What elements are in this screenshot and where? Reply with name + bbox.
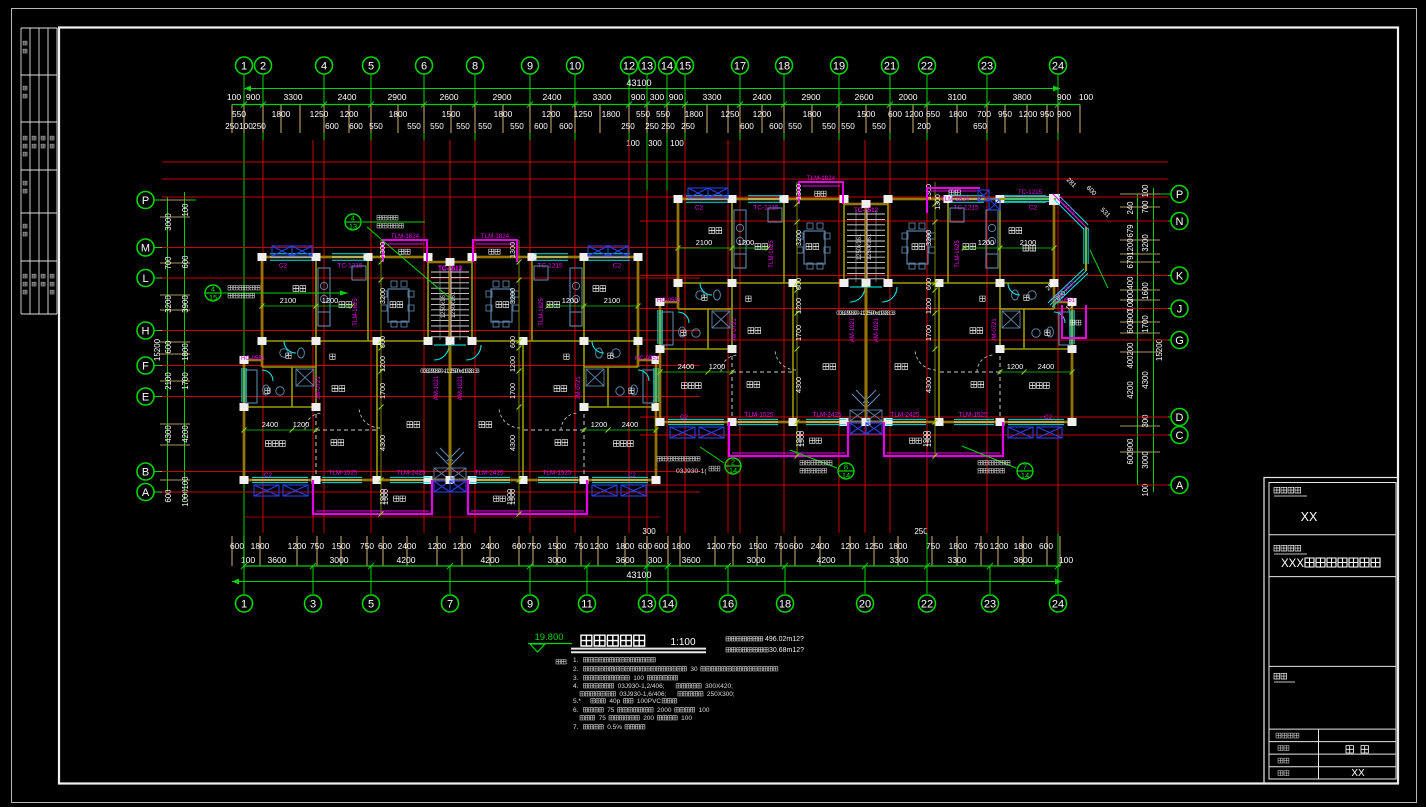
svg-text:C2: C2 — [680, 414, 688, 421]
svg-text:750: 750 — [574, 541, 588, 551]
svg-text:G: G — [1175, 335, 1184, 347]
svg-text:1600: 1600 — [1141, 282, 1150, 300]
svg-text:400: 400 — [1126, 276, 1135, 290]
svg-text:TLM-2425: TLM-2425 — [474, 470, 504, 477]
svg-text:03J930-1,2/406;: 03J930-1,2/406; — [618, 683, 665, 690]
svg-text:14: 14 — [842, 471, 850, 480]
svg-text:1250x161: 1250x161 — [451, 291, 457, 318]
svg-text:1800: 1800 — [272, 109, 291, 119]
svg-text:TLM-1824: TLM-1824 — [941, 196, 970, 203]
svg-text:TLM-2425: TLM-2425 — [396, 470, 426, 477]
svg-text:3600: 3600 — [615, 555, 634, 565]
svg-text:1800: 1800 — [949, 541, 968, 551]
svg-text:100PVC: 100PVC — [637, 698, 662, 705]
svg-text:TLM-1625: TLM-1625 — [353, 298, 359, 326]
svg-text:1200: 1200 — [378, 356, 387, 372]
svg-text:1250: 1250 — [865, 541, 884, 551]
svg-text:100: 100 — [670, 139, 684, 148]
svg-text:14: 14 — [661, 60, 673, 72]
svg-text:4: 4 — [321, 60, 327, 72]
svg-text:A: A — [1176, 480, 1184, 492]
svg-text:1300: 1300 — [794, 184, 803, 200]
svg-text:3900: 3900 — [181, 295, 190, 313]
svg-text:1800: 1800 — [685, 109, 704, 119]
svg-text:24: 24 — [1052, 598, 1064, 610]
svg-text:1800: 1800 — [1014, 541, 1033, 551]
svg-text:1000: 1000 — [181, 489, 190, 507]
svg-text:4200: 4200 — [1126, 381, 1135, 399]
svg-text:600: 600 — [740, 122, 754, 131]
svg-text:3300: 3300 — [283, 92, 302, 102]
svg-text:5: 5 — [368, 598, 374, 610]
svg-text:600: 600 — [378, 541, 392, 551]
svg-text:950: 950 — [998, 109, 1012, 119]
svg-text:TLM-1525: TLM-1525 — [744, 412, 774, 419]
svg-text:900: 900 — [1057, 92, 1072, 102]
svg-text:3300: 3300 — [592, 92, 611, 102]
svg-text:550: 550 — [407, 122, 421, 131]
svg-text:100: 100 — [181, 203, 190, 217]
svg-text:100: 100 — [1079, 92, 1094, 102]
svg-text:600: 600 — [638, 541, 652, 551]
svg-text:600: 600 — [349, 122, 363, 131]
svg-text:9: 9 — [527, 60, 533, 72]
svg-text:TLM-1824: TLM-1824 — [391, 233, 420, 240]
svg-text:600: 600 — [888, 109, 902, 119]
svg-text:3600: 3600 — [267, 555, 286, 565]
svg-text:12: 12 — [623, 60, 635, 72]
svg-text:750: 750 — [774, 541, 788, 551]
svg-text:H: H — [142, 325, 150, 337]
svg-text:2400: 2400 — [262, 420, 278, 429]
svg-text:14: 14 — [1021, 471, 1029, 480]
svg-text:3100: 3100 — [947, 92, 966, 102]
svg-text:1800: 1800 — [803, 109, 822, 119]
svg-text:1700: 1700 — [924, 325, 933, 341]
svg-text:1800: 1800 — [181, 343, 190, 361]
svg-text:2100: 2100 — [696, 238, 712, 247]
svg-text:4300: 4300 — [378, 435, 387, 451]
svg-text:C2: C2 — [279, 263, 288, 270]
svg-text:1700: 1700 — [181, 372, 190, 390]
svg-text:AM-1021: AM-1021 — [874, 317, 880, 342]
svg-text:C2: C2 — [1044, 414, 1052, 421]
svg-text:3.: 3. — [573, 675, 579, 682]
svg-text:1200: 1200 — [841, 541, 860, 551]
svg-text:19.800: 19.800 — [534, 632, 563, 643]
svg-text:1700: 1700 — [378, 383, 387, 399]
svg-text:600: 600 — [181, 255, 190, 269]
svg-text:3000: 3000 — [329, 555, 348, 565]
svg-text:2100: 2100 — [164, 372, 173, 390]
svg-text:100: 100 — [227, 92, 242, 102]
svg-text:2400: 2400 — [811, 541, 830, 551]
svg-text:3000: 3000 — [164, 213, 173, 231]
svg-text:900: 900 — [1126, 309, 1135, 323]
svg-text:1200: 1200 — [340, 109, 359, 119]
svg-text:3600: 3600 — [1013, 555, 1032, 565]
svg-text:XX: XX — [1301, 510, 1318, 524]
svg-text:TLM-1625: TLM-1625 — [769, 240, 775, 268]
svg-text:1500: 1500 — [548, 541, 567, 551]
svg-text:1250x161: 1250x161 — [867, 233, 873, 260]
svg-text:16: 16 — [722, 598, 734, 610]
svg-text:1200: 1200 — [978, 238, 994, 247]
svg-text:300: 300 — [1141, 414, 1150, 428]
svg-text:600: 600 — [789, 541, 803, 551]
svg-text:2600: 2600 — [854, 92, 873, 102]
svg-text:600: 600 — [1126, 320, 1135, 334]
svg-text:1200: 1200 — [508, 356, 517, 372]
svg-text:300: 300 — [650, 92, 665, 102]
svg-text:100: 100 — [626, 139, 640, 148]
svg-text:750: 750 — [926, 541, 940, 551]
svg-text:1500: 1500 — [332, 541, 351, 551]
svg-text:600: 600 — [1126, 451, 1135, 465]
svg-text:1300: 1300 — [935, 194, 942, 210]
svg-text:14: 14 — [729, 466, 737, 475]
svg-text:1200: 1200 — [905, 109, 924, 119]
svg-text:2400: 2400 — [678, 362, 694, 371]
svg-text:679: 679 — [1126, 255, 1135, 268]
svg-text:550: 550 — [788, 122, 802, 131]
svg-text:14: 14 — [662, 598, 674, 610]
svg-text:550: 550 — [822, 122, 836, 131]
svg-text:550: 550 — [369, 122, 383, 131]
svg-text:13: 13 — [641, 60, 653, 72]
svg-text:2000: 2000 — [898, 92, 917, 102]
svg-text:4200: 4200 — [816, 555, 835, 565]
svg-text:250: 250 — [645, 122, 659, 131]
svg-text:XX: XX — [1351, 768, 1365, 779]
svg-text:3000: 3000 — [1141, 451, 1150, 469]
svg-text:600: 600 — [512, 541, 526, 551]
svg-text:TC-1512: TC-1512 — [438, 266, 463, 273]
svg-text:AM-1021: AM-1021 — [850, 317, 856, 342]
svg-text:1250: 1250 — [721, 109, 740, 119]
svg-text:2000: 2000 — [657, 707, 672, 714]
svg-text:03J930-1250x193.3: 03J930-1250x193.3 — [838, 310, 896, 317]
svg-text:650: 650 — [973, 122, 987, 131]
svg-text:75: 75 — [599, 715, 607, 722]
svg-text:2100: 2100 — [280, 296, 296, 305]
svg-text:2400: 2400 — [398, 541, 417, 551]
svg-text:250: 250 — [225, 122, 239, 131]
svg-text:1200: 1200 — [288, 541, 307, 551]
svg-text:7: 7 — [447, 598, 453, 610]
svg-text:550: 550 — [430, 122, 444, 131]
svg-text:250: 250 — [914, 527, 928, 536]
svg-text:JM-0721: JM-0721 — [316, 376, 322, 400]
svg-text:300X420;: 300X420; — [705, 683, 733, 690]
svg-text:K: K — [1176, 270, 1184, 282]
svg-text:1500: 1500 — [857, 109, 876, 119]
svg-text:TLM-1525: TLM-1525 — [542, 470, 572, 477]
svg-text:550: 550 — [636, 109, 650, 119]
svg-text:3200: 3200 — [378, 288, 387, 304]
svg-text:1200: 1200 — [428, 541, 447, 551]
svg-text:100: 100 — [241, 555, 256, 565]
svg-text:TC-1512: TC-1512 — [854, 207, 879, 214]
svg-text:0.5%: 0.5% — [607, 724, 622, 731]
svg-text:1900: 1900 — [794, 431, 803, 447]
svg-text:4200: 4200 — [396, 555, 415, 565]
svg-text:900: 900 — [631, 92, 646, 102]
svg-text:1900: 1900 — [508, 489, 517, 505]
svg-text:1800: 1800 — [949, 109, 968, 119]
svg-text:2: 2 — [260, 60, 266, 72]
svg-text:600: 600 — [378, 336, 387, 348]
svg-text:AM-1021: AM-1021 — [458, 375, 464, 400]
svg-text:900: 900 — [246, 92, 261, 102]
svg-text:30.68m12?: 30.68m12? — [769, 647, 804, 654]
svg-text:750: 750 — [727, 541, 741, 551]
svg-text:200: 200 — [643, 715, 654, 722]
svg-text:13: 13 — [349, 222, 357, 231]
svg-text:1700: 1700 — [794, 325, 803, 341]
svg-text:250: 250 — [661, 122, 675, 131]
svg-text:15: 15 — [679, 60, 691, 72]
svg-text:4.: 4. — [573, 683, 579, 690]
svg-text:19: 19 — [833, 60, 845, 72]
svg-text:1800: 1800 — [672, 541, 691, 551]
svg-text:1200: 1200 — [322, 296, 338, 305]
svg-text:700: 700 — [1141, 200, 1150, 214]
svg-text:TLM-1525: TLM-1525 — [328, 470, 358, 477]
svg-text:03J930-1,6/406;: 03J930-1,6/406; — [619, 691, 666, 698]
svg-text:A: A — [142, 487, 150, 499]
svg-text:4300: 4300 — [794, 377, 803, 393]
svg-text:2.: 2. — [573, 666, 579, 673]
svg-text:550: 550 — [656, 109, 670, 119]
svg-text:1200: 1200 — [562, 296, 578, 305]
svg-text:20: 20 — [859, 598, 871, 610]
svg-text:43100: 43100 — [626, 78, 651, 88]
svg-text:250: 250 — [621, 122, 635, 131]
svg-text:1200: 1200 — [590, 541, 609, 551]
svg-text:240: 240 — [1126, 201, 1135, 215]
svg-text:1250: 1250 — [310, 109, 329, 119]
svg-text:22: 22 — [921, 598, 933, 610]
svg-text:43100: 43100 — [626, 570, 651, 580]
svg-text:4200: 4200 — [480, 555, 499, 565]
svg-text:C2: C2 — [613, 263, 622, 270]
svg-text:100: 100 — [633, 675, 644, 682]
svg-text:2900: 2900 — [387, 92, 406, 102]
svg-text:1200: 1200 — [453, 541, 472, 551]
svg-text:23: 23 — [981, 60, 993, 72]
svg-text:11: 11 — [581, 598, 592, 610]
svg-text:600: 600 — [1039, 541, 1053, 551]
svg-text:200: 200 — [1126, 342, 1135, 356]
svg-text:2400: 2400 — [481, 541, 500, 551]
svg-text:1700: 1700 — [1141, 315, 1150, 333]
svg-text:100: 100 — [681, 715, 692, 722]
svg-text:900: 900 — [1126, 438, 1135, 452]
svg-text:100: 100 — [1126, 298, 1135, 312]
svg-text:750: 750 — [360, 541, 374, 551]
svg-text:600: 600 — [769, 122, 783, 131]
svg-text:600: 600 — [654, 541, 668, 551]
svg-text:15: 15 — [209, 293, 217, 302]
svg-text:550: 550 — [510, 122, 524, 131]
svg-text:700: 700 — [977, 109, 991, 119]
svg-text:600: 600 — [794, 278, 803, 290]
svg-text:2400: 2400 — [1038, 362, 1054, 371]
svg-text:30: 30 — [690, 666, 698, 673]
svg-text:1200: 1200 — [924, 298, 933, 314]
svg-text:C2: C2 — [1029, 205, 1038, 212]
svg-text:600: 600 — [230, 541, 244, 551]
svg-text:1800: 1800 — [251, 541, 270, 551]
svg-text:200: 200 — [917, 122, 931, 131]
svg-text:1500: 1500 — [749, 541, 768, 551]
svg-text:2400: 2400 — [752, 92, 771, 102]
svg-text:C2: C2 — [628, 472, 636, 479]
svg-text:3300: 3300 — [947, 555, 966, 565]
svg-text:1200: 1200 — [709, 362, 725, 371]
svg-text:AM-1021: AM-1021 — [434, 375, 440, 400]
svg-text:8: 8 — [472, 60, 478, 72]
svg-text:1900: 1900 — [924, 431, 933, 447]
svg-text:15200: 15200 — [1155, 338, 1164, 361]
svg-text:4200: 4200 — [181, 425, 190, 443]
svg-text:3200: 3200 — [794, 230, 803, 246]
svg-text:3300: 3300 — [889, 555, 908, 565]
svg-text:550: 550 — [872, 122, 886, 131]
svg-text:1800: 1800 — [889, 541, 908, 551]
svg-text:24: 24 — [1052, 60, 1064, 72]
svg-text:22: 22 — [921, 60, 933, 72]
svg-text:6: 6 — [421, 60, 427, 72]
svg-text:C: C — [1176, 430, 1184, 442]
svg-text:1300: 1300 — [378, 242, 387, 258]
svg-text:1300: 1300 — [924, 184, 933, 200]
svg-text:1200: 1200 — [794, 298, 803, 314]
svg-text:1200: 1200 — [542, 109, 561, 119]
svg-text:2900: 2900 — [801, 92, 820, 102]
svg-text:15200: 15200 — [153, 338, 162, 361]
svg-text:900: 900 — [669, 92, 684, 102]
svg-text:600: 600 — [924, 278, 933, 290]
svg-text:1500: 1500 — [442, 109, 461, 119]
svg-text:3300: 3300 — [702, 92, 721, 102]
svg-text:5: 5 — [368, 60, 374, 72]
svg-text:HC-0551: HC-0551 — [241, 356, 266, 362]
svg-text:6.: 6. — [573, 707, 579, 714]
svg-text:100: 100 — [699, 707, 710, 714]
svg-text:2400: 2400 — [622, 420, 638, 429]
svg-text:1250x161: 1250x161 — [857, 233, 863, 260]
svg-text:B: B — [142, 466, 149, 478]
svg-text:1.: 1. — [573, 657, 579, 664]
svg-text:750: 750 — [527, 541, 541, 551]
svg-text:4300: 4300 — [164, 425, 173, 443]
svg-text:4300: 4300 — [924, 377, 933, 393]
svg-text:TC-1215: TC-1215 — [1018, 189, 1043, 196]
svg-text:TLM-1525: TLM-1525 — [958, 412, 988, 419]
svg-text:100: 100 — [1141, 184, 1150, 198]
svg-text:5.*: 5.* — [573, 698, 581, 705]
svg-text:JM-0721: JM-0721 — [732, 318, 738, 342]
svg-text:100: 100 — [181, 476, 190, 490]
svg-text:1300: 1300 — [508, 242, 517, 258]
svg-text:18: 18 — [778, 60, 790, 72]
svg-text:1800: 1800 — [494, 109, 513, 119]
svg-text:1200: 1200 — [1126, 238, 1135, 256]
svg-text:N: N — [1176, 216, 1184, 228]
svg-text:HC-0551: HC-0551 — [635, 356, 660, 362]
svg-text:C2: C2 — [264, 472, 272, 479]
svg-text:600: 600 — [508, 336, 517, 348]
svg-text:2100: 2100 — [604, 296, 620, 305]
svg-text:3200: 3200 — [164, 295, 173, 313]
svg-text:400: 400 — [1126, 355, 1135, 369]
svg-text:1200: 1200 — [1007, 362, 1023, 371]
svg-text:3200: 3200 — [508, 288, 517, 304]
svg-text:18: 18 — [779, 598, 791, 610]
svg-text:4300: 4300 — [1141, 371, 1150, 389]
svg-text:23: 23 — [984, 598, 996, 610]
svg-text:750: 750 — [974, 541, 988, 551]
svg-text:1700: 1700 — [508, 383, 517, 399]
svg-text:TLM-2425: TLM-2425 — [890, 412, 920, 419]
svg-text:600: 600 — [164, 489, 173, 503]
svg-text:750: 750 — [310, 541, 324, 551]
svg-text:550: 550 — [478, 122, 492, 131]
svg-text:TLM-2425: TLM-2425 — [812, 412, 842, 419]
svg-text:1200: 1200 — [753, 109, 772, 119]
svg-text:E: E — [142, 391, 149, 403]
svg-text:1200: 1200 — [738, 238, 754, 247]
svg-text:250X300;: 250X300; — [707, 691, 735, 698]
svg-text:1200: 1200 — [1019, 109, 1038, 119]
svg-text:2600: 2600 — [439, 92, 458, 102]
svg-text:L: L — [142, 273, 148, 285]
svg-text:F: F — [142, 360, 149, 372]
svg-text:1200: 1200 — [990, 541, 1009, 551]
svg-text:3000: 3000 — [547, 555, 566, 565]
svg-text:75: 75 — [607, 707, 615, 714]
svg-text:550: 550 — [456, 122, 470, 131]
svg-text:13: 13 — [641, 598, 653, 610]
svg-text:600: 600 — [164, 340, 173, 354]
svg-text:1200: 1200 — [293, 420, 309, 429]
svg-text:P: P — [1176, 189, 1183, 201]
svg-text:10: 10 — [569, 60, 581, 72]
svg-text:P: P — [142, 195, 149, 207]
svg-text:2400: 2400 — [337, 92, 356, 102]
svg-text:JM-0721: JM-0721 — [576, 376, 582, 400]
svg-text:J: J — [1177, 303, 1183, 315]
svg-text:C2: C2 — [695, 205, 704, 212]
svg-text:M: M — [141, 242, 150, 254]
svg-text:1800: 1800 — [602, 109, 621, 119]
svg-text:550: 550 — [841, 122, 855, 131]
svg-text:900: 900 — [1057, 109, 1071, 119]
svg-text:21: 21 — [884, 60, 896, 72]
svg-text:300: 300 — [648, 139, 662, 148]
svg-text:600: 600 — [559, 122, 573, 131]
svg-text:496.02m12?: 496.02m12? — [765, 636, 804, 643]
svg-text:TLM-1625: TLM-1625 — [539, 298, 545, 326]
svg-text:1:100: 1:100 — [670, 637, 695, 648]
svg-text:1800: 1800 — [616, 541, 635, 551]
svg-text:1250: 1250 — [574, 109, 593, 119]
svg-text:3000: 3000 — [746, 555, 765, 565]
svg-text:3: 3 — [310, 598, 316, 610]
svg-text:650: 650 — [926, 109, 940, 119]
